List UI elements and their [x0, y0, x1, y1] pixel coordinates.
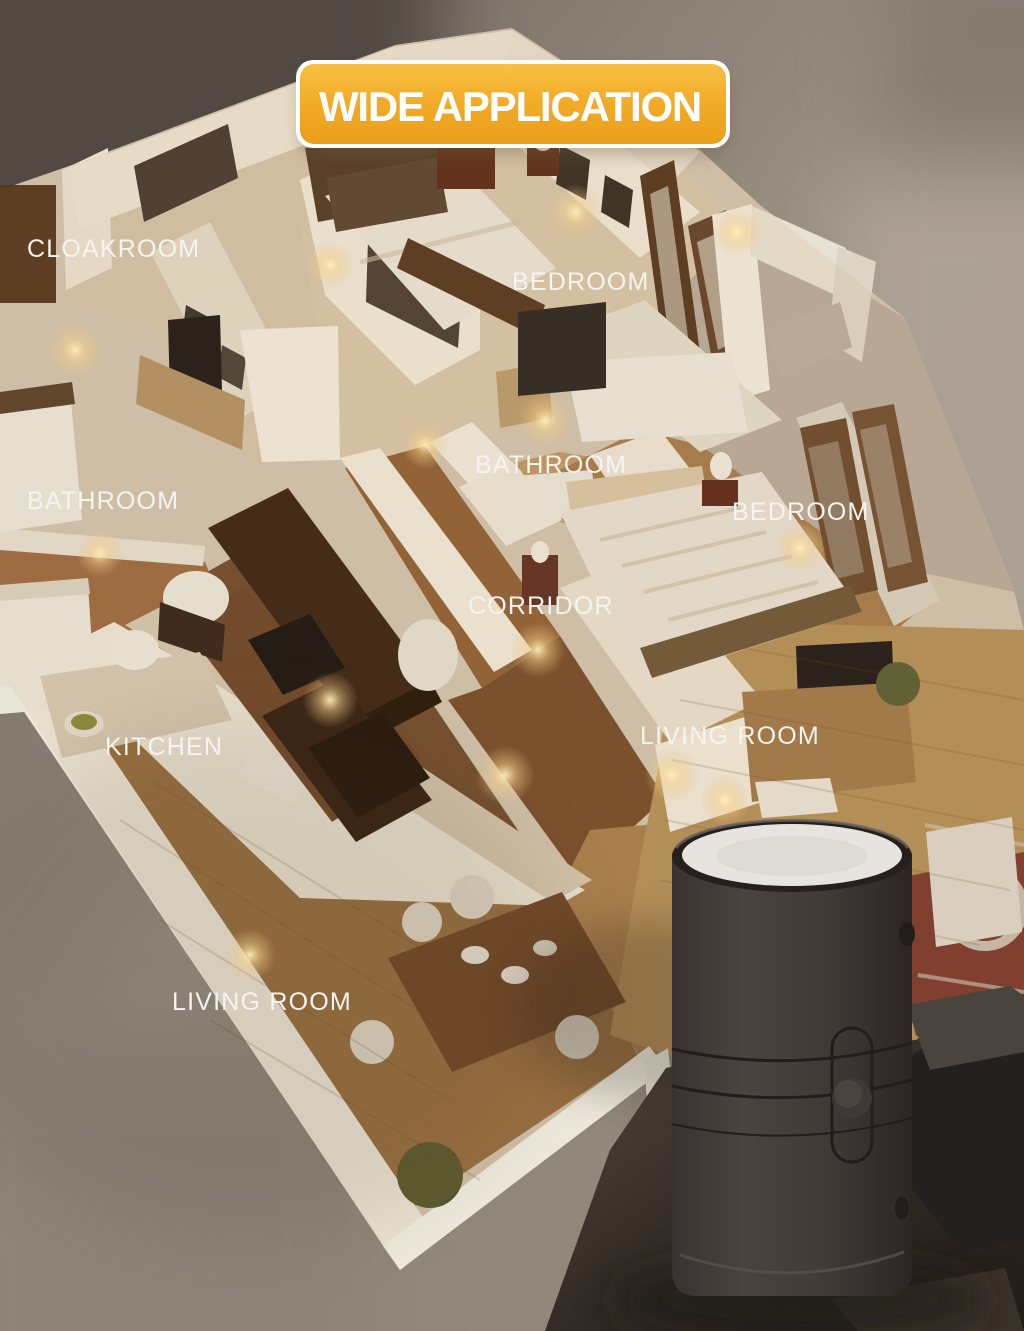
- svg-text:BEDROOM: BEDROOM: [512, 268, 650, 296]
- svg-text:CORRIDOR: CORRIDOR: [468, 592, 614, 620]
- svg-text:BATHROOM: BATHROOM: [475, 451, 627, 479]
- svg-text:LIVING ROOM: LIVING ROOM: [172, 988, 352, 1016]
- svg-text:BEDROOM: BEDROOM: [732, 498, 870, 526]
- svg-text:KITCHEN: KITCHEN: [105, 733, 223, 761]
- svg-text:WIDE APPLICATION: WIDE APPLICATION: [319, 83, 701, 130]
- svg-text:LIVING ROOM: LIVING ROOM: [640, 722, 820, 750]
- svg-text:CLOAKROOM: CLOAKROOM: [27, 235, 200, 263]
- svg-text:BATHROOM: BATHROOM: [27, 487, 179, 515]
